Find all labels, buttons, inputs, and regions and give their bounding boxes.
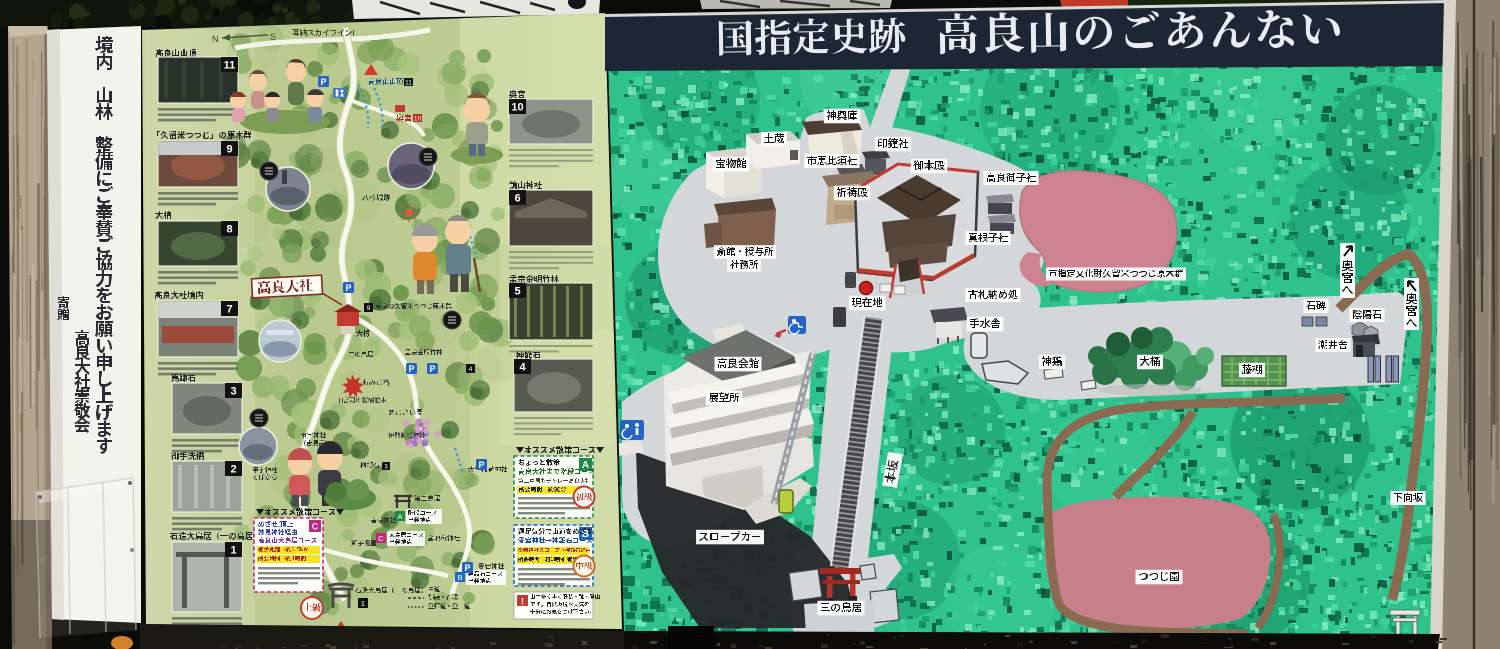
svg-text:P: P	[320, 77, 326, 87]
svg-text:A: A	[397, 512, 402, 521]
svg-text:A: A	[582, 460, 589, 471]
svg-text:!: !	[521, 597, 524, 608]
svg-text:C: C	[312, 522, 319, 532]
svg-text:6: 6	[514, 193, 520, 205]
svg-text:P: P	[408, 364, 414, 374]
svg-text:1: 1	[230, 545, 236, 557]
svg-text:4: 4	[519, 362, 526, 374]
svg-text:1: 1	[361, 599, 365, 608]
svg-text:10: 10	[511, 102, 523, 114]
svg-text:N: N	[212, 34, 219, 44]
svg-text:10: 10	[414, 116, 422, 123]
svg-text:4: 4	[469, 366, 473, 373]
svg-text:11: 11	[224, 60, 236, 72]
svg-text:9: 9	[226, 144, 232, 156]
svg-text:P: P	[464, 563, 470, 573]
svg-text:P: P	[478, 460, 484, 470]
svg-text:P: P	[345, 283, 351, 293]
svg-text:C: C	[378, 534, 384, 543]
svg-text:2: 2	[230, 464, 236, 476]
svg-text:3: 3	[230, 386, 236, 398]
svg-text:S: S	[270, 32, 276, 42]
svg-text:8: 8	[226, 224, 232, 236]
svg-text:7: 7	[226, 304, 232, 316]
svg-text:9: 9	[367, 305, 371, 312]
svg-text:11: 11	[405, 80, 412, 87]
svg-text:5: 5	[514, 286, 520, 298]
svg-text:P: P	[429, 364, 435, 374]
svg-text:B: B	[457, 573, 462, 582]
